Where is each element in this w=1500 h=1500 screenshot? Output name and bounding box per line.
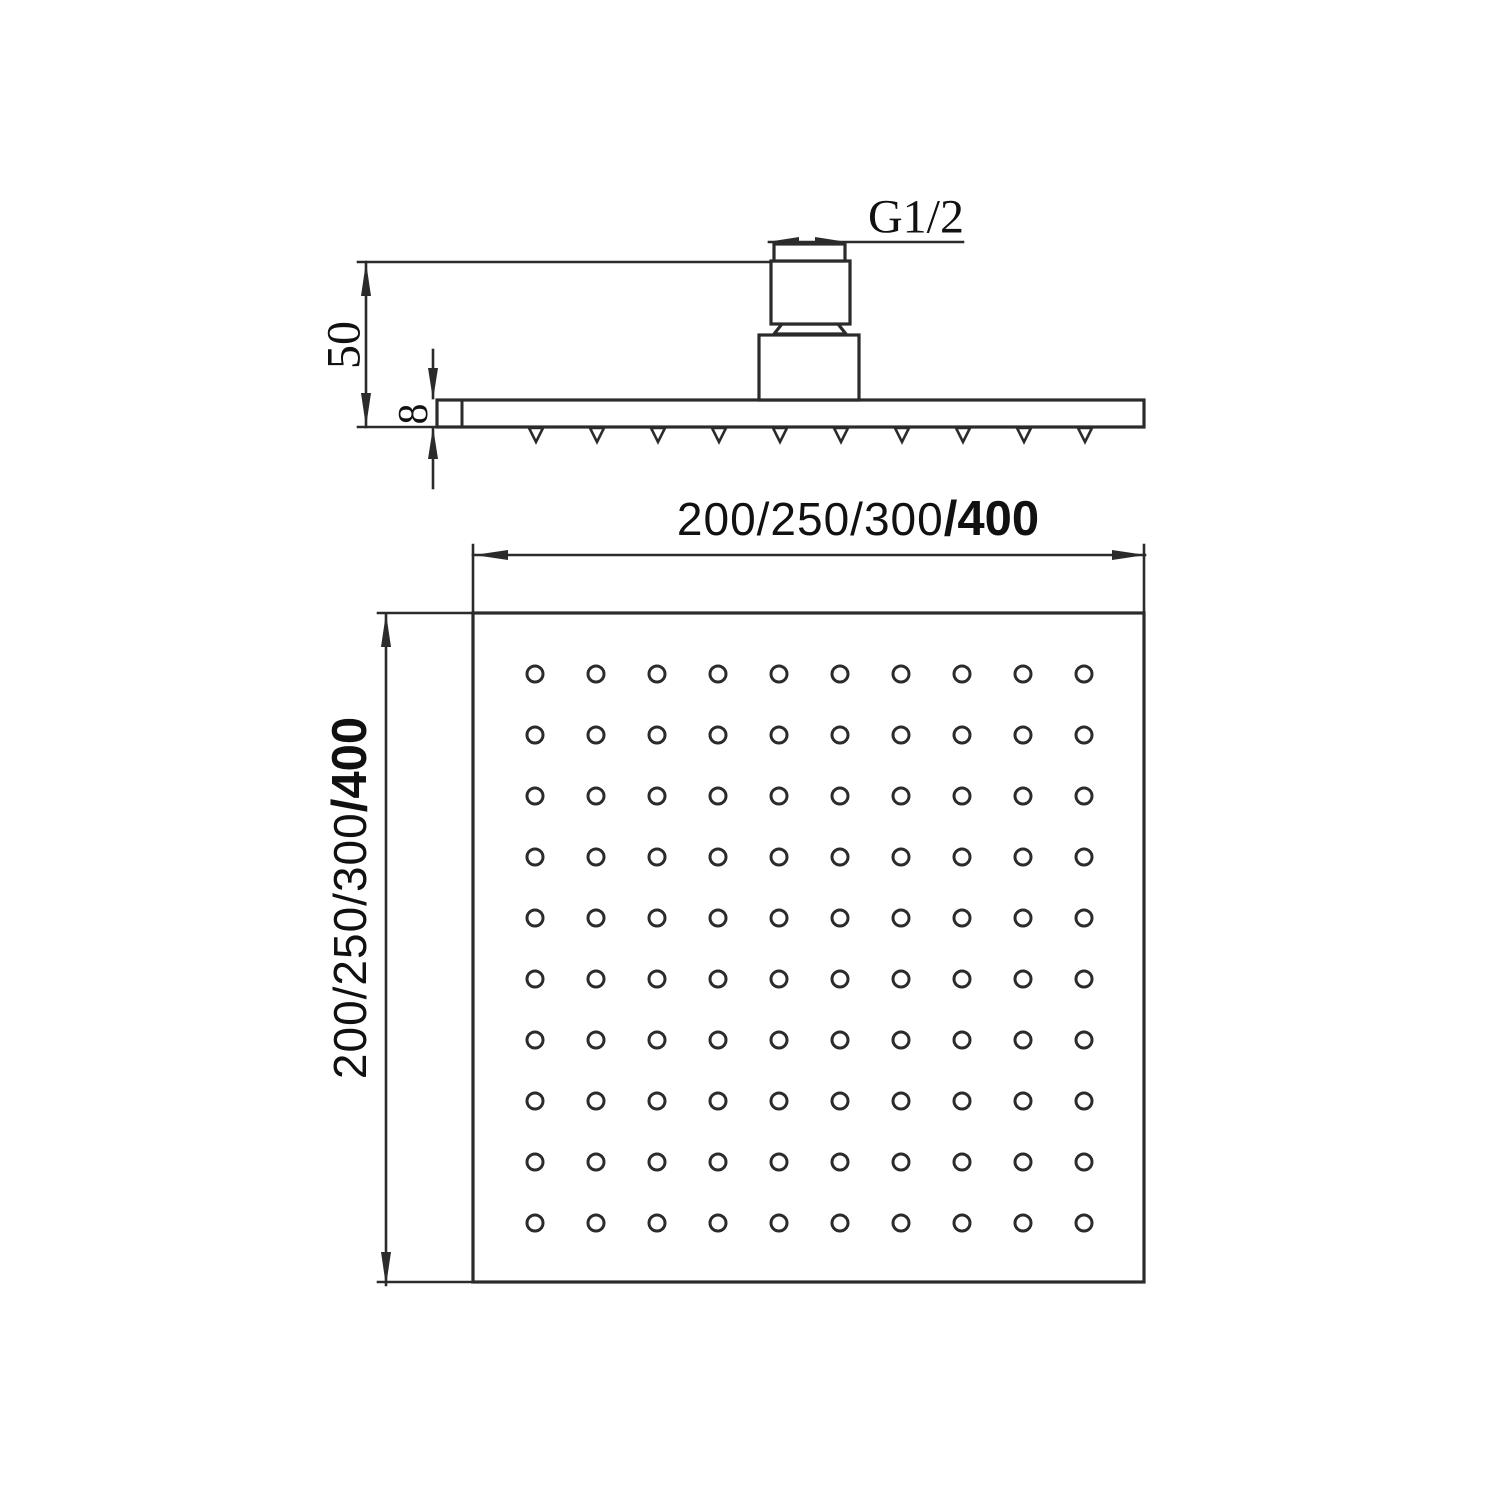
- spray-hole: [527, 788, 543, 804]
- nozzle-icon: [590, 428, 604, 442]
- connector-base: [759, 335, 859, 400]
- spray-hole: [1015, 727, 1031, 743]
- spray-hole: [832, 910, 848, 926]
- spray-hole: [710, 1154, 726, 1170]
- spray-hole: [893, 910, 909, 926]
- spray-hole: [588, 849, 604, 865]
- spray-hole: [1015, 1215, 1031, 1231]
- spray-hole: [527, 1215, 543, 1231]
- spray-hole: [893, 727, 909, 743]
- spray-hole: [954, 1154, 970, 1170]
- spray-hole: [649, 849, 665, 865]
- dimension-height: 200/250/300/400: [323, 613, 473, 1286]
- spray-hole: [832, 849, 848, 865]
- spray-hole: [1076, 1154, 1092, 1170]
- spray-hole: [771, 788, 787, 804]
- spray-hole: [710, 849, 726, 865]
- nozzle-icon: [651, 428, 665, 442]
- spray-hole: [1015, 1154, 1031, 1170]
- thickness-dim-label: 8: [391, 404, 437, 425]
- spray-hole: [1015, 910, 1031, 926]
- spray-hole: [710, 666, 726, 682]
- spray-hole: [954, 910, 970, 926]
- face-view: 200/250/300/400 200/250/300/400: [323, 492, 1146, 1286]
- spray-hole: [954, 727, 970, 743]
- side-view: 50 8 G1/2: [318, 191, 1145, 489]
- nozzle-icon: [1017, 428, 1031, 442]
- dimension-width: 200/250/300/400: [473, 492, 1146, 613]
- spray-hole: [649, 1215, 665, 1231]
- spray-hole: [832, 1032, 848, 1048]
- spray-hole: [771, 727, 787, 743]
- spray-hole: [954, 849, 970, 865]
- spray-hole: [649, 666, 665, 682]
- spray-hole: [1015, 1093, 1031, 1109]
- spray-hole: [649, 971, 665, 987]
- spray-hole: [832, 971, 848, 987]
- plate-profile: [437, 400, 1144, 427]
- spray-hole: [649, 1093, 665, 1109]
- spray-hole: [771, 1215, 787, 1231]
- spray-hole: [771, 910, 787, 926]
- spray-hole: [649, 1032, 665, 1048]
- spray-hole: [588, 1093, 604, 1109]
- spray-hole: [710, 788, 726, 804]
- width-dim-label: 200/250/300/400: [677, 492, 1039, 546]
- spray-hole: [1015, 849, 1031, 865]
- nozzles-row: [529, 428, 1092, 442]
- spray-hole: [588, 1032, 604, 1048]
- spray-hole: [649, 1154, 665, 1170]
- spray-hole: [832, 727, 848, 743]
- spray-hole: [527, 1154, 543, 1170]
- spray-hole: [832, 788, 848, 804]
- spray-hole: [588, 910, 604, 926]
- spray-hole: [710, 1093, 726, 1109]
- spray-hole: [527, 1032, 543, 1048]
- spray-hole: [771, 1154, 787, 1170]
- spray-hole: [1076, 1032, 1092, 1048]
- spray-hole: [1076, 849, 1092, 865]
- spray-hole: [771, 666, 787, 682]
- spray-hole: [649, 727, 665, 743]
- spray-hole: [588, 727, 604, 743]
- spray-hole: [588, 971, 604, 987]
- spray-hole: [954, 1032, 970, 1048]
- spray-hole: [588, 788, 604, 804]
- spray-hole: [527, 910, 543, 926]
- spray-hole: [1015, 788, 1031, 804]
- spray-hole: [588, 1154, 604, 1170]
- dimension-thickness-8: 8: [391, 350, 438, 488]
- spray-hole: [893, 1154, 909, 1170]
- spray-hole: [1015, 971, 1031, 987]
- spray-hole: [771, 971, 787, 987]
- arrow-left-icon: [474, 550, 508, 560]
- spray-hole: [649, 788, 665, 804]
- spray-hole: [527, 727, 543, 743]
- spray-hole: [1076, 666, 1092, 682]
- arrow-up-icon: [428, 427, 438, 459]
- height-dim-label: 200/250/300/400: [323, 717, 377, 1079]
- spray-hole: [710, 910, 726, 926]
- spray-hole: [954, 1215, 970, 1231]
- shower-head-profile: [437, 244, 1144, 427]
- spray-hole: [527, 1093, 543, 1109]
- nozzle-icon: [1078, 428, 1092, 442]
- height-dim-label: 50: [318, 321, 371, 369]
- spray-hole: [527, 666, 543, 682]
- nozzle-icon: [529, 428, 543, 442]
- spray-hole: [649, 910, 665, 926]
- spray-hole: [954, 1093, 970, 1109]
- arrow-right-icon: [1112, 550, 1146, 560]
- spray-hole: [771, 1032, 787, 1048]
- spray-hole: [893, 788, 909, 804]
- spray-hole: [1076, 727, 1092, 743]
- spray-hole: [588, 666, 604, 682]
- spray-hole: [893, 666, 909, 682]
- spray-hole: [588, 1215, 604, 1231]
- spray-hole: [954, 666, 970, 682]
- spray-hole: [893, 971, 909, 987]
- spray-hole: [771, 1093, 787, 1109]
- connector-nut: [771, 261, 850, 324]
- drawing-canvas: 50 8 G1/2: [0, 0, 1500, 1500]
- spray-hole: [832, 1093, 848, 1109]
- nozzle-icon: [773, 428, 787, 442]
- spray-hole: [710, 1032, 726, 1048]
- nozzle-icon: [712, 428, 726, 442]
- spray-hole: [1076, 910, 1092, 926]
- nozzle-icon: [956, 428, 970, 442]
- spray-hole: [1015, 1032, 1031, 1048]
- spray-hole: [771, 849, 787, 865]
- spray-hole: [832, 666, 848, 682]
- spray-hole: [832, 1154, 848, 1170]
- spray-hole: [710, 727, 726, 743]
- arrow-up-icon: [361, 262, 371, 296]
- arrow-up-icon: [381, 613, 391, 647]
- spray-hole: [893, 1215, 909, 1231]
- spray-hole: [1076, 1215, 1092, 1231]
- faceplate-outline: [473, 613, 1144, 1282]
- spray-hole: [954, 971, 970, 987]
- arrow-down-icon: [361, 393, 371, 427]
- spray-hole: [1076, 788, 1092, 804]
- spray-hole: [1015, 666, 1031, 682]
- spray-hole: [954, 788, 970, 804]
- spray-hole: [527, 971, 543, 987]
- spray-hole: [1076, 1093, 1092, 1109]
- spray-hole: [710, 1215, 726, 1231]
- arrow-down-icon: [428, 368, 438, 400]
- spray-hole: [893, 849, 909, 865]
- spray-hole: [710, 971, 726, 987]
- nozzle-icon: [834, 428, 848, 442]
- thread-size-label: G1/2: [868, 191, 964, 244]
- spray-hole: [832, 1215, 848, 1231]
- spray-hole: [893, 1093, 909, 1109]
- spray-hole: [527, 849, 543, 865]
- nozzle-icon: [895, 428, 909, 442]
- technical-drawing: 50 8 G1/2: [0, 0, 1500, 1500]
- connector-lip: [774, 244, 845, 261]
- thread-callout: G1/2: [767, 191, 964, 248]
- spray-hole: [1076, 971, 1092, 987]
- spray-hole: [893, 1032, 909, 1048]
